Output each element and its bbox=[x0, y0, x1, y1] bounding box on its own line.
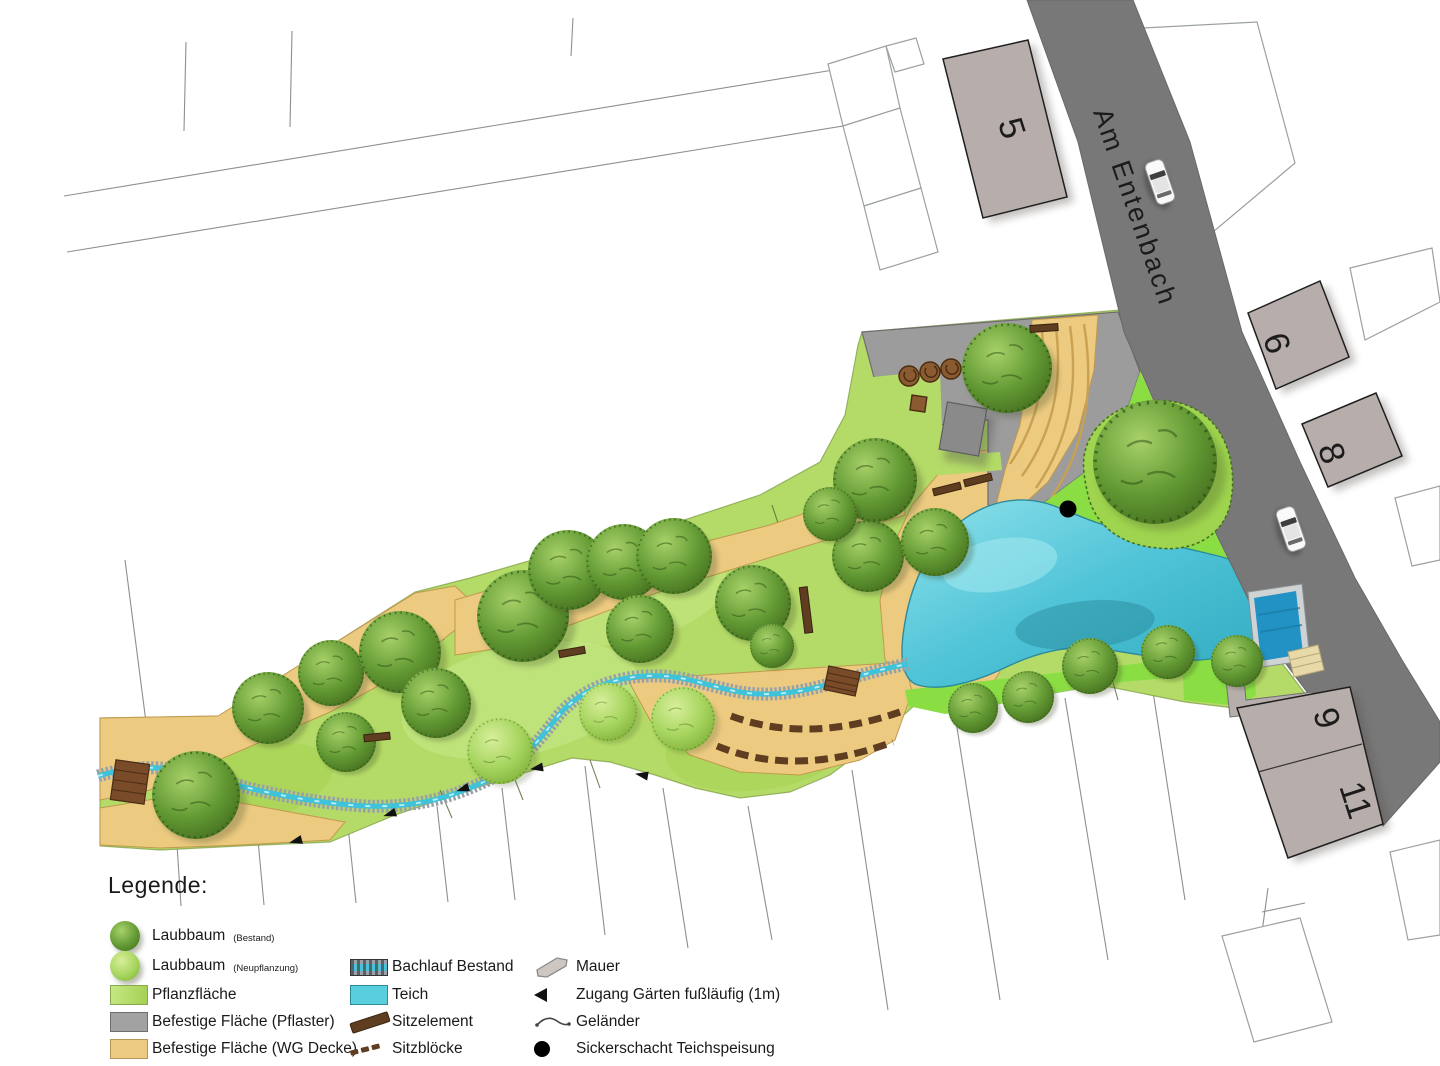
stream-swatch bbox=[350, 959, 388, 976]
tree-existing-icon bbox=[110, 921, 140, 951]
wall-icon bbox=[534, 954, 570, 980]
paved-pflaster-swatch bbox=[110, 1012, 148, 1032]
legend-item-sitzelement: Sitzelement bbox=[350, 1008, 473, 1036]
seat-blocks-icon bbox=[350, 1043, 380, 1055]
access-triangle-icon bbox=[534, 988, 547, 1002]
pond-swatch bbox=[350, 985, 388, 1005]
legend-item-gelaender: Geländer bbox=[534, 1008, 640, 1036]
legend-item-teich: Teich bbox=[350, 981, 428, 1009]
building-6 bbox=[1248, 281, 1349, 389]
legend-item-sitzbloecke: Sitzblöcke bbox=[350, 1035, 463, 1063]
legend-item-laubbaum-bestand: Laubbaum (Bestand) bbox=[110, 922, 274, 950]
legend-item-mauer: Mauer bbox=[534, 953, 620, 981]
tree-new-icon bbox=[110, 951, 140, 981]
legend-item-laubbaum-neupflanzung: Laubbaum (Neupflanzung) bbox=[110, 952, 298, 980]
building-8 bbox=[1302, 393, 1402, 487]
planting-area-swatch bbox=[110, 985, 148, 1005]
legend-title: Legende: bbox=[108, 872, 208, 899]
legend-item-wg-decke: Befestige Fläche (WG Decke) bbox=[110, 1035, 357, 1063]
soak-shaft-dot bbox=[1060, 501, 1077, 518]
paved-wg-decke-swatch bbox=[110, 1039, 148, 1059]
legend-item-bachlauf: Bachlauf Bestand bbox=[350, 953, 514, 981]
site-plan-drawing: 5 6 8 9 11 Am Entenbach bbox=[0, 0, 1440, 1066]
legend-item-sickerschacht: Sickerschacht Teichspeisung bbox=[534, 1035, 775, 1063]
seat-element-icon bbox=[349, 1011, 390, 1034]
soak-shaft-icon bbox=[534, 1041, 550, 1057]
railing-icon bbox=[534, 1012, 572, 1032]
legend-item-zugang: Zugang Gärten fußläufig (1m) bbox=[534, 981, 780, 1009]
legend-item-pflaster: Befestige Fläche (Pflaster) bbox=[110, 1008, 335, 1036]
legend-item-pflanzflaeche: Pflanzfläche bbox=[110, 981, 236, 1009]
site-plan-page: { "plan": { "street_label": "Am Entenbac… bbox=[0, 0, 1440, 1066]
